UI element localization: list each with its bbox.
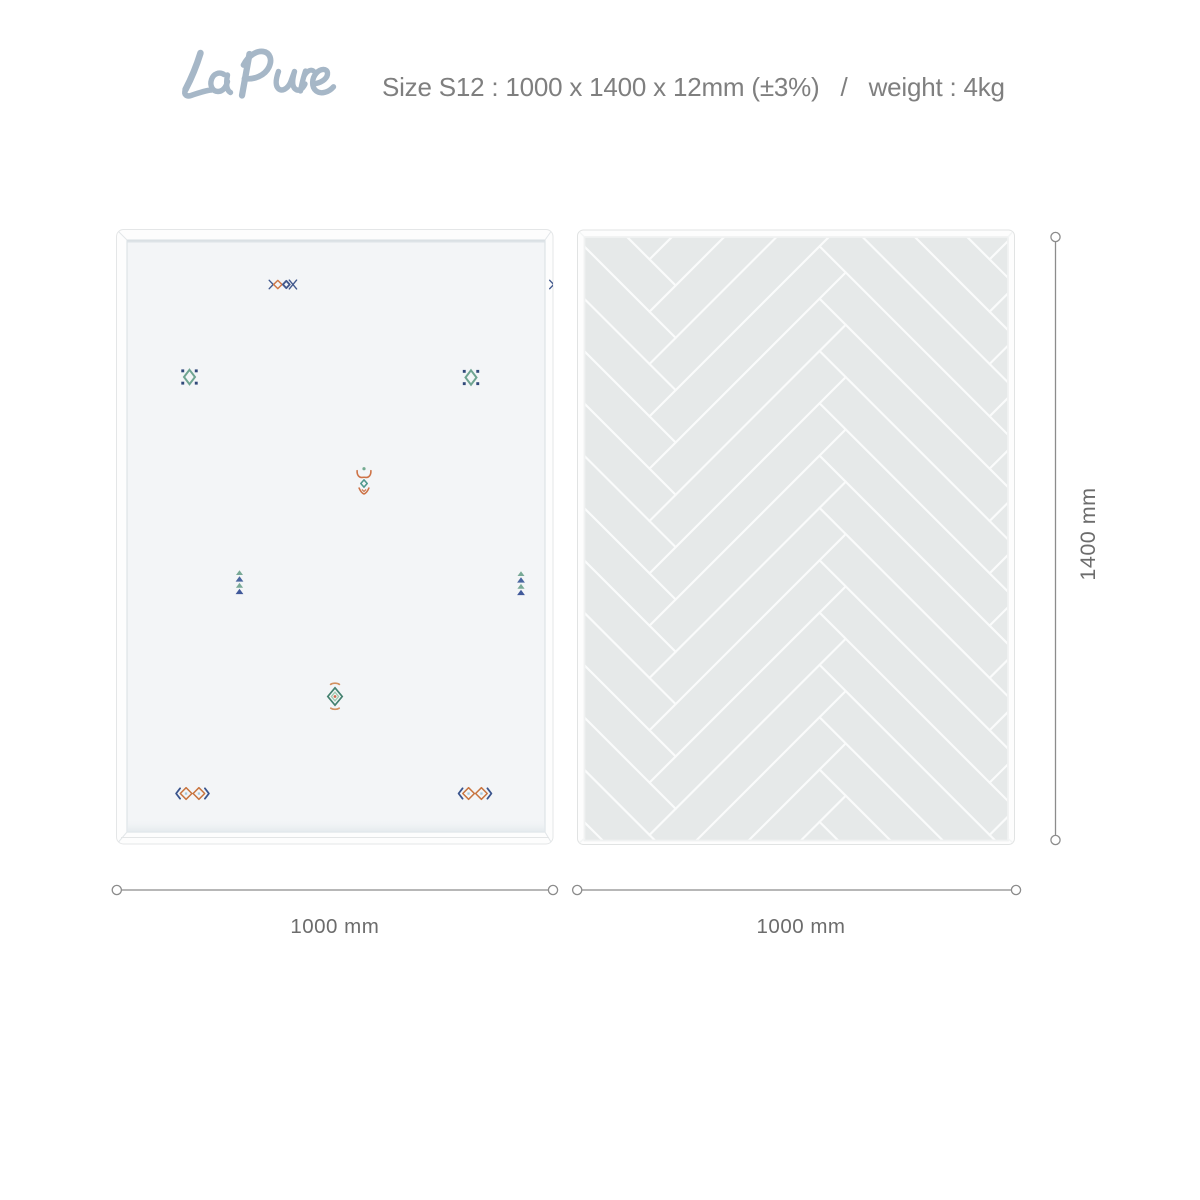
svg-text:1400 mm: 1400 mm — [1076, 487, 1100, 580]
svg-text:Size S12 : 1000 x 1400 x 12mm: Size S12 : 1000 x 1400 x 12mm (±3%) / we… — [382, 72, 1005, 102]
svg-text:1000 mm: 1000 mm — [290, 915, 379, 938]
svg-text:1000 mm: 1000 mm — [757, 915, 846, 938]
